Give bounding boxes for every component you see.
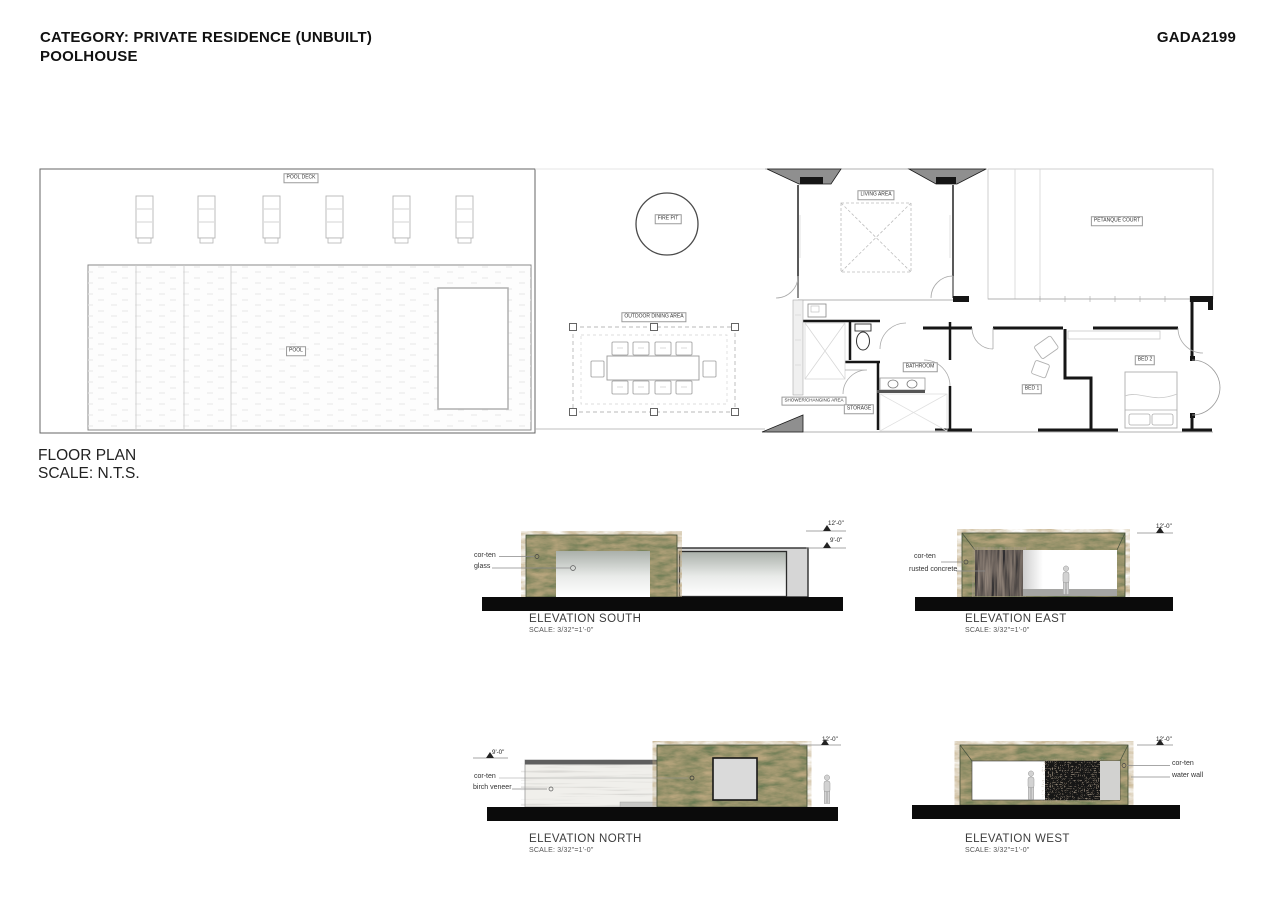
window-north	[713, 758, 757, 800]
ground-line-south	[482, 597, 843, 611]
pool-shape	[88, 265, 531, 430]
toilet-tank	[855, 324, 871, 331]
architecture-sheet: { "header": { "category_line": "CATEGORY…	[0, 0, 1273, 900]
elevation-north-title: ELEVATION NORTH	[529, 833, 642, 845]
sheet-category-title: CATEGORY: PRIVATE RESIDENCE (UNBUILT)	[40, 29, 372, 46]
elevation-east-scale: SCALE: 3/32"=1'-0"	[965, 627, 1030, 634]
dim-9-south: 9'-0"	[830, 537, 842, 544]
label-bed2: BED 2	[1135, 355, 1155, 365]
elevation-south-scale: SCALE: 3/32"=1'-0"	[529, 627, 594, 634]
elevation-east-title: ELEVATION EAST	[965, 613, 1067, 625]
dim-12-east: 12'-0"	[1156, 523, 1172, 530]
pool-bench-shape	[438, 288, 508, 409]
sheet-project-title: POOLHOUSE	[40, 48, 138, 65]
label-pool: POOL	[286, 346, 306, 356]
label-fire-pit: FIRE PIT	[655, 214, 682, 224]
scale-figure-north	[824, 775, 830, 804]
label-living-area: LIVING AREA	[857, 190, 894, 200]
elevation-south-drawing	[482, 525, 846, 611]
floor-plan-title: FLOOR PLAN	[38, 447, 136, 465]
label-pool-deck: POOL DECK	[284, 173, 319, 183]
birch-veneer-wall	[525, 760, 657, 807]
floor-plan-scale: SCALE: N.T.S.	[38, 465, 140, 483]
dining-table-shape	[607, 356, 699, 380]
elevation-north-scale: SCALE: 3/32"=1'-0"	[529, 847, 594, 854]
elevation-north-drawing	[473, 739, 841, 821]
dim-12-south: 12'-0"	[828, 520, 844, 527]
rusted-concrete-panel	[975, 550, 1023, 596]
annotation-rusted-concrete: rusted concrete	[909, 566, 957, 573]
annotation-corten-north: cor-ten	[474, 773, 496, 780]
ground-line-north	[487, 807, 838, 821]
annotation-glass-south: glass	[474, 563, 490, 570]
water-wall-panel	[1045, 761, 1100, 800]
ground-line-west	[912, 805, 1180, 819]
annotation-water-wall: water wall	[1172, 772, 1203, 779]
toilet-bowl	[857, 332, 870, 350]
elevation-south-title: ELEVATION SOUTH	[529, 613, 641, 625]
annotation-corten-west: cor-ten	[1172, 760, 1194, 767]
glass-wall-south	[556, 551, 650, 597]
floor-plan-drawing	[40, 168, 1220, 433]
label-bathroom: BATHROOM	[903, 362, 938, 372]
label-bed1: BED 1	[1022, 384, 1042, 394]
dim-12-north: 12'-0"	[822, 736, 838, 743]
petanque-court-shape	[988, 169, 1213, 302]
annotation-corten-south: cor-ten	[474, 552, 496, 559]
ground-line-east	[915, 597, 1173, 611]
annotation-corten-east: cor-ten	[914, 553, 936, 560]
fire-pit-shape	[636, 193, 698, 255]
dim-12-west: 12'-0"	[1156, 736, 1172, 743]
label-petanque-court: PETANQUE COURT	[1091, 216, 1143, 226]
outdoor-dining-shapes	[570, 324, 739, 416]
vanity-counter	[880, 378, 925, 390]
label-outdoor-dining: OUTDOOR DINING AREA	[621, 312, 686, 322]
elevation-west-title: ELEVATION WEST	[965, 833, 1070, 845]
annotation-birch-veneer: birch veneer	[473, 784, 512, 791]
sheet-drawing	[0, 0, 1273, 900]
sheet-code: GADA2199	[1157, 29, 1236, 46]
dim-9-north: 9'-0"	[492, 749, 504, 756]
label-storage: STORAGE	[844, 404, 874, 414]
elevation-west-scale: SCALE: 3/32"=1'-0"	[965, 847, 1030, 854]
label-shower-changing: SHOWER/CHANGING AREA	[781, 397, 846, 406]
elevation-west-drawing	[912, 739, 1180, 819]
